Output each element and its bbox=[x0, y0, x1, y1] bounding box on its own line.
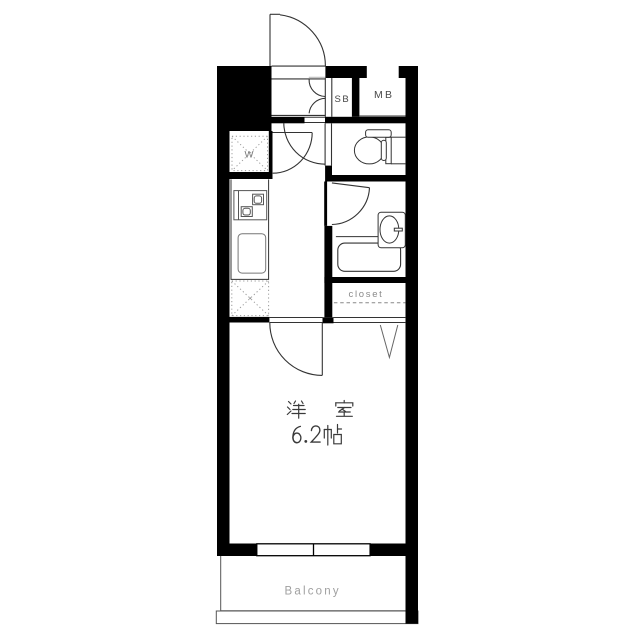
svg-text:closet: closet bbox=[349, 289, 384, 300]
svg-text:MB: MB bbox=[374, 89, 394, 101]
svg-text:SB: SB bbox=[335, 94, 351, 105]
svg-text:Balcony: Balcony bbox=[285, 585, 341, 597]
svg-text:W: W bbox=[245, 150, 254, 161]
